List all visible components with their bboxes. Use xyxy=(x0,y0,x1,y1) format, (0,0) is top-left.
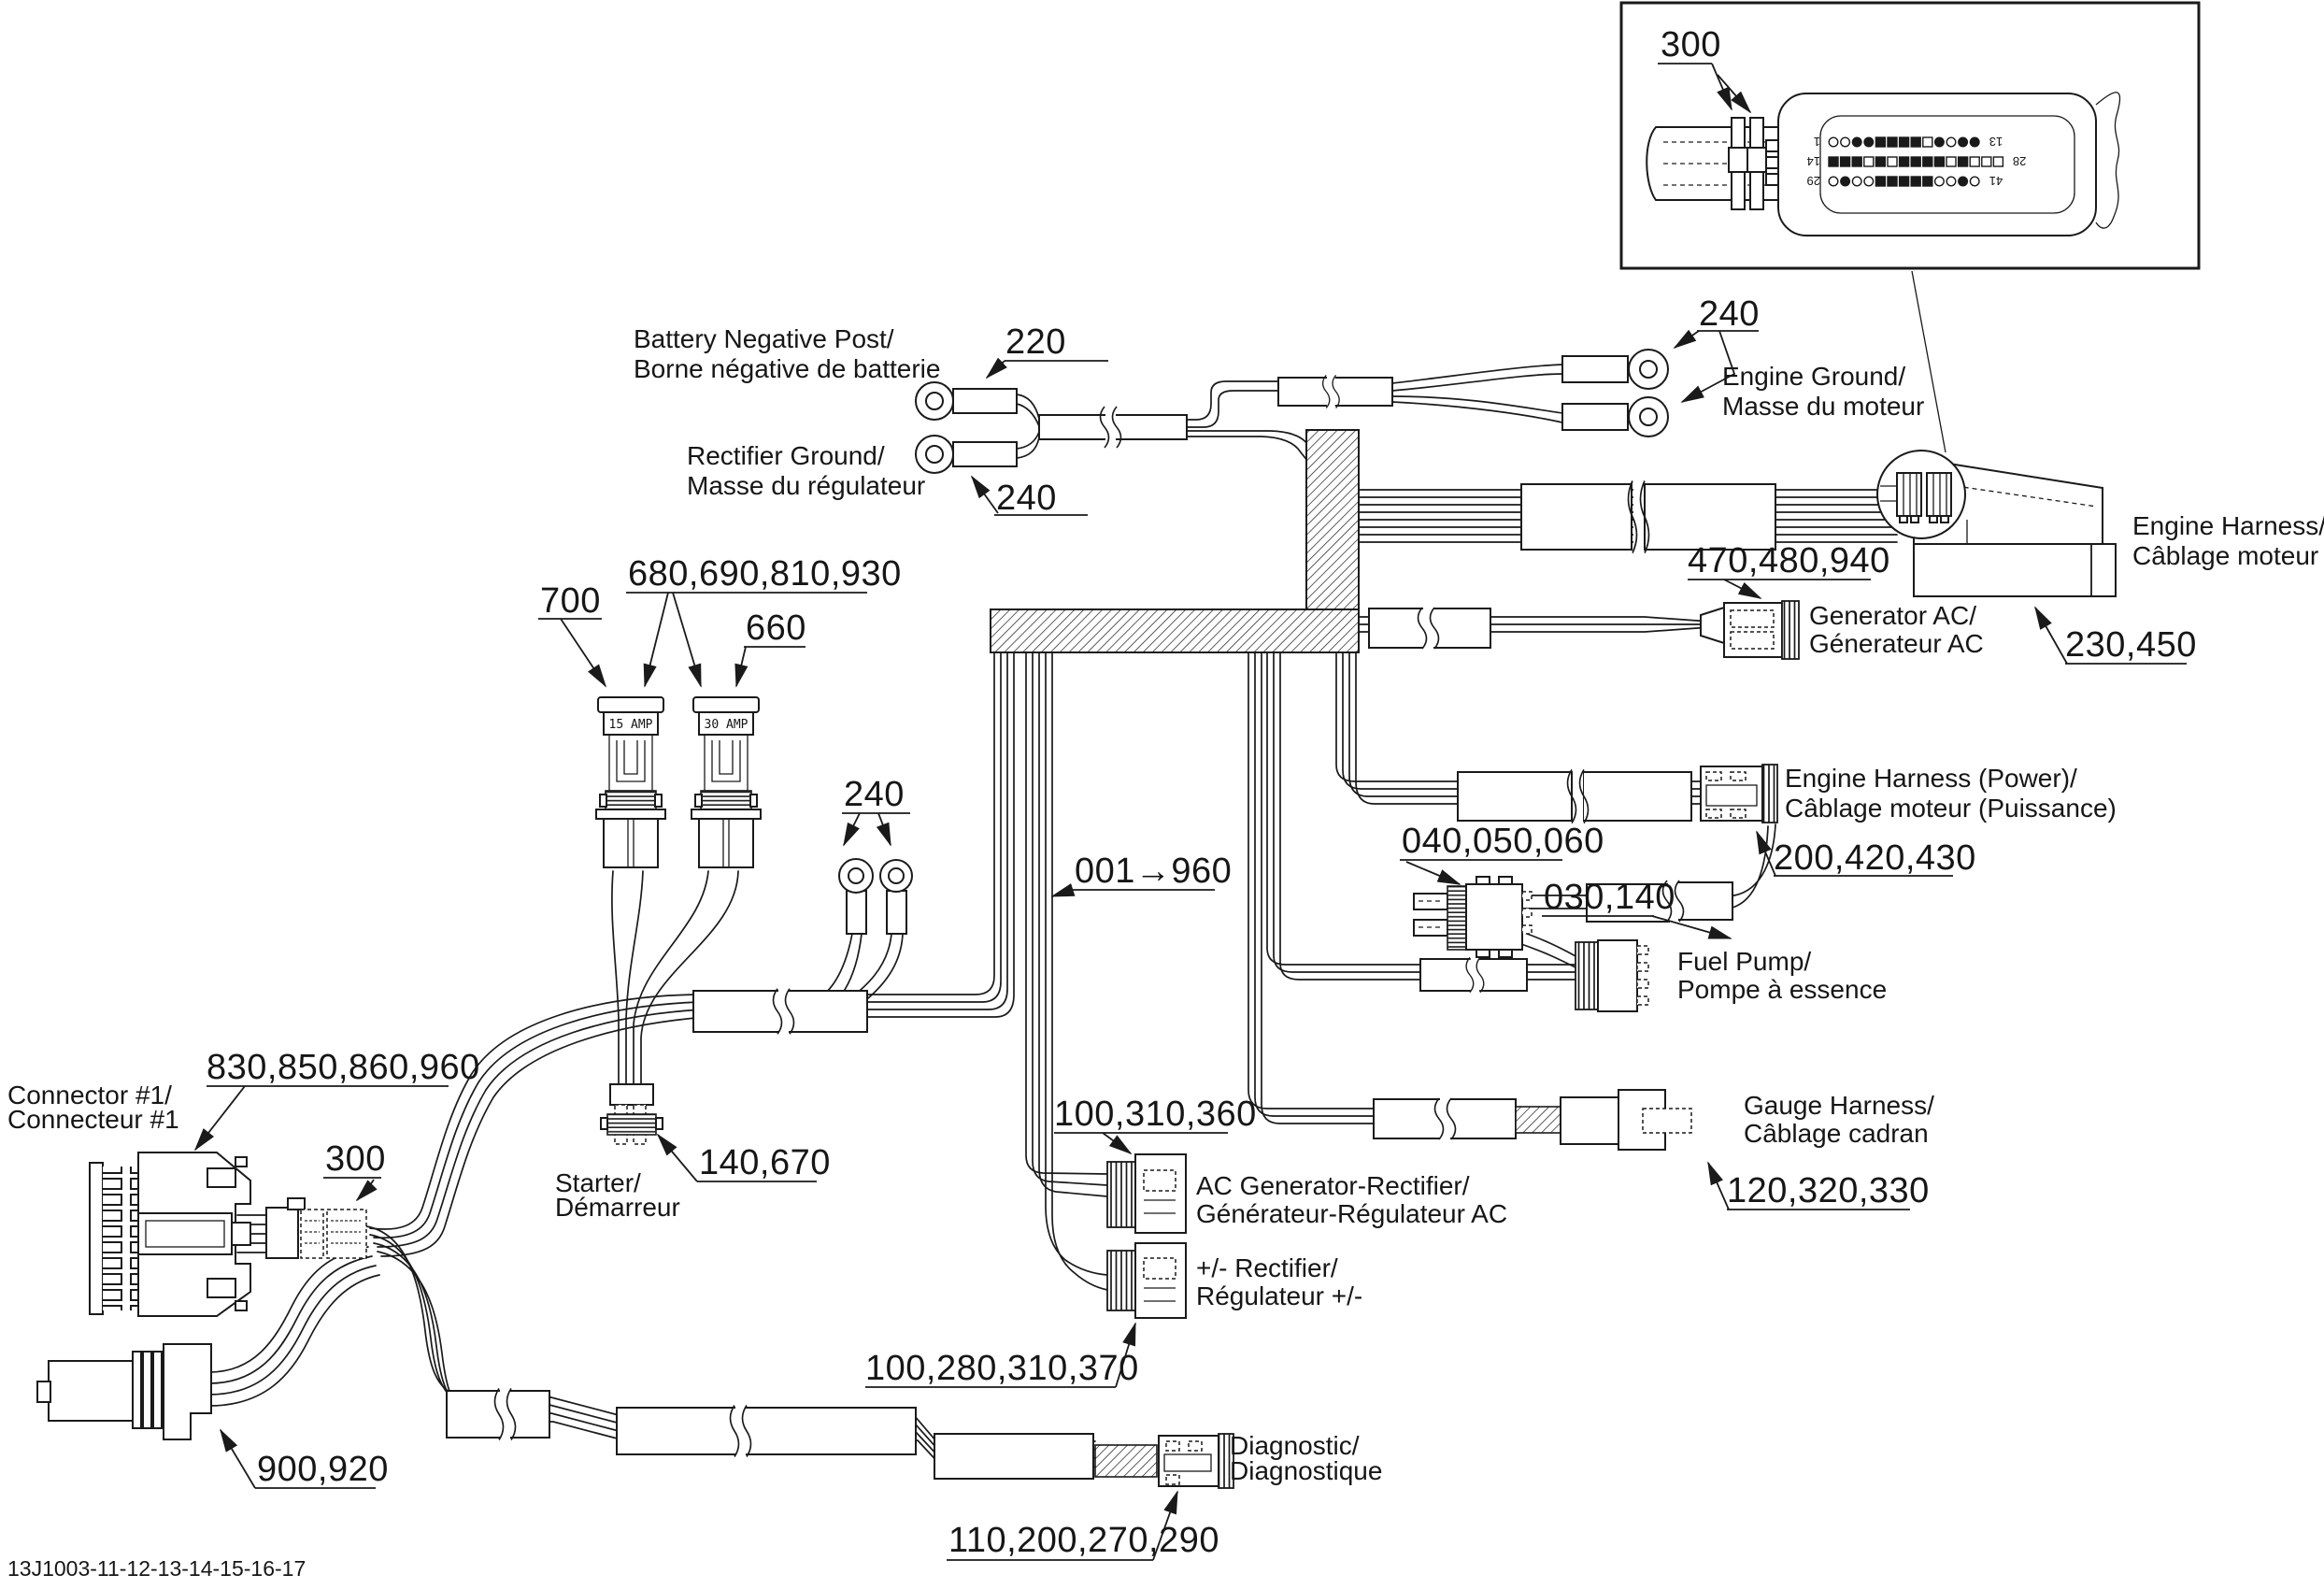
callout-fuse-right: 660 xyxy=(746,608,806,648)
svg-text:14: 14 xyxy=(1807,154,1820,168)
ring-terminals-engine-ground xyxy=(1562,350,1668,437)
connector-generator-ac xyxy=(1701,601,1799,659)
callout-generator-ac: 470,480,940 xyxy=(1688,541,1890,580)
connector-ac-generator-rectifier xyxy=(1107,1154,1186,1233)
callout-bottom-left-conn: 900,920 xyxy=(257,1450,389,1489)
connector-engine-harness-power xyxy=(1701,765,1777,823)
svg-text:29: 29 xyxy=(1807,174,1820,188)
connector-fuel-pump xyxy=(1575,940,1648,1011)
callout-connector1-tag: 300 xyxy=(325,1139,386,1179)
sleeves xyxy=(266,375,1775,1479)
label-diagnostic-fr: Diagnostique xyxy=(1230,1456,1382,1485)
wiring-diagram-page: 15 AMP 30 AMP xyxy=(0,0,2324,1589)
fuse-15amp-label: 15 AMP xyxy=(609,718,653,732)
connector-inline xyxy=(1414,877,1532,957)
label-engine-harness-fr: Câblage moteur xyxy=(2132,541,2318,570)
callout-diagnostic: 110,200,270,290 xyxy=(948,1521,1219,1560)
ring-terminal-rectifier-ground xyxy=(916,436,1017,473)
svg-text:1: 1 xyxy=(1814,135,1820,149)
label-battery-en: Battery Negative Post/ xyxy=(634,324,894,353)
callout-starter: 140,670 xyxy=(699,1143,831,1182)
label-generator-ac-en: Generator AC/ xyxy=(1809,601,1976,630)
label-starter-fr: Démarreur xyxy=(555,1193,680,1222)
callout-power: 200,420,430 xyxy=(1774,838,1976,878)
callout-mid-grounds: 240 xyxy=(844,775,905,814)
label-pm-rect-en: +/- Rectifier/ xyxy=(1196,1253,1338,1282)
inset-panel: 11314282941 300 xyxy=(1621,3,2199,268)
svg-text:28: 28 xyxy=(2013,154,2026,168)
callout-fuse-left: 700 xyxy=(540,581,601,621)
connector-bottom-left xyxy=(37,1344,211,1439)
ring-terminal-battery-negative xyxy=(916,382,1017,420)
label-rectifier-ground-fr: Masse du régulateur xyxy=(687,471,925,500)
drawing-number: 13J1003-11-12-13-14-15-16-17 xyxy=(7,1556,306,1581)
connector-diagnostic xyxy=(1159,1434,1233,1488)
trunk-braid xyxy=(991,430,1359,652)
callout-engine-ground: 240 xyxy=(1699,294,1760,334)
ring-terminals-mid-ground xyxy=(839,859,912,934)
callout-harness-span: 001→960 xyxy=(1075,852,1232,891)
callout-ac-gen-rect: 100,310,360 xyxy=(1054,1095,1257,1134)
callout-fuel-pump: 030,140 xyxy=(1544,878,1675,917)
wiring-diagram: 15 AMP 30 AMP xyxy=(0,0,2324,1589)
label-fuel-pump-fr: Pompe à essence xyxy=(1677,975,1887,1004)
callout-battery: 220 xyxy=(1005,322,1066,362)
fuse-30amp-label: 30 AMP xyxy=(705,718,749,732)
callout-gauge: 120,320,330 xyxy=(1727,1171,1930,1210)
svg-text:13: 13 xyxy=(1989,135,2003,149)
connector-starter xyxy=(601,1084,663,1144)
callout-fuses-all: 680,690,810,930 xyxy=(628,554,902,594)
label-connector1-fr: Connecteur #1 xyxy=(7,1105,179,1134)
label-ac-gen-rect-fr: Générateur-Régulateur AC xyxy=(1196,1199,1507,1228)
connector-pm-rectifier xyxy=(1107,1243,1186,1318)
label-power-fr: Câblage moteur (Puissance) xyxy=(1785,794,2117,823)
label-ac-gen-rect-en: AC Generator-Rectifier/ xyxy=(1196,1171,1470,1200)
label-battery-fr: Borne négative de batterie xyxy=(634,354,940,383)
engine-harness-assembly xyxy=(1877,271,2116,596)
callout-inset-300: 300 xyxy=(1661,25,1721,64)
connector-gauge-harness xyxy=(1561,1090,1691,1150)
callout-engine-harness: 230,450 xyxy=(2065,625,2197,665)
connector-1 xyxy=(90,1152,250,1316)
fuse-30amp: 30 AMP xyxy=(691,697,761,867)
label-engine-ground-en: Engine Ground/ xyxy=(1722,362,1905,391)
label-pm-rect-fr: Régulateur +/- xyxy=(1196,1281,1362,1310)
label-rectifier-ground-en: Rectifier Ground/ xyxy=(687,441,885,470)
wire-label-tags xyxy=(288,1198,366,1258)
callout-pm-rect: 100,280,310,370 xyxy=(865,1349,1139,1388)
label-engine-harness-en: Engine Harness/ xyxy=(2132,511,2324,540)
callout-connector1: 830,850,860,960 xyxy=(207,1048,480,1087)
label-gauge-en: Gauge Harness/ xyxy=(1744,1091,1934,1120)
label-fuel-pump-en: Fuel Pump/ xyxy=(1677,947,1811,976)
callout-rectifier-ground: 240 xyxy=(996,479,1057,518)
fuse-15amp: 15 AMP xyxy=(596,697,665,867)
label-engine-ground-fr: Masse du moteur xyxy=(1722,392,1924,421)
svg-text:41: 41 xyxy=(1989,174,2003,188)
callout-inline-conn: 040,050,060 xyxy=(1402,822,1604,861)
label-gauge-fr: Câblage cadran xyxy=(1744,1119,1929,1148)
label-power-en: Engine Harness (Power)/ xyxy=(1785,764,2077,793)
label-generator-ac-fr: Génerateur AC xyxy=(1809,629,1984,658)
